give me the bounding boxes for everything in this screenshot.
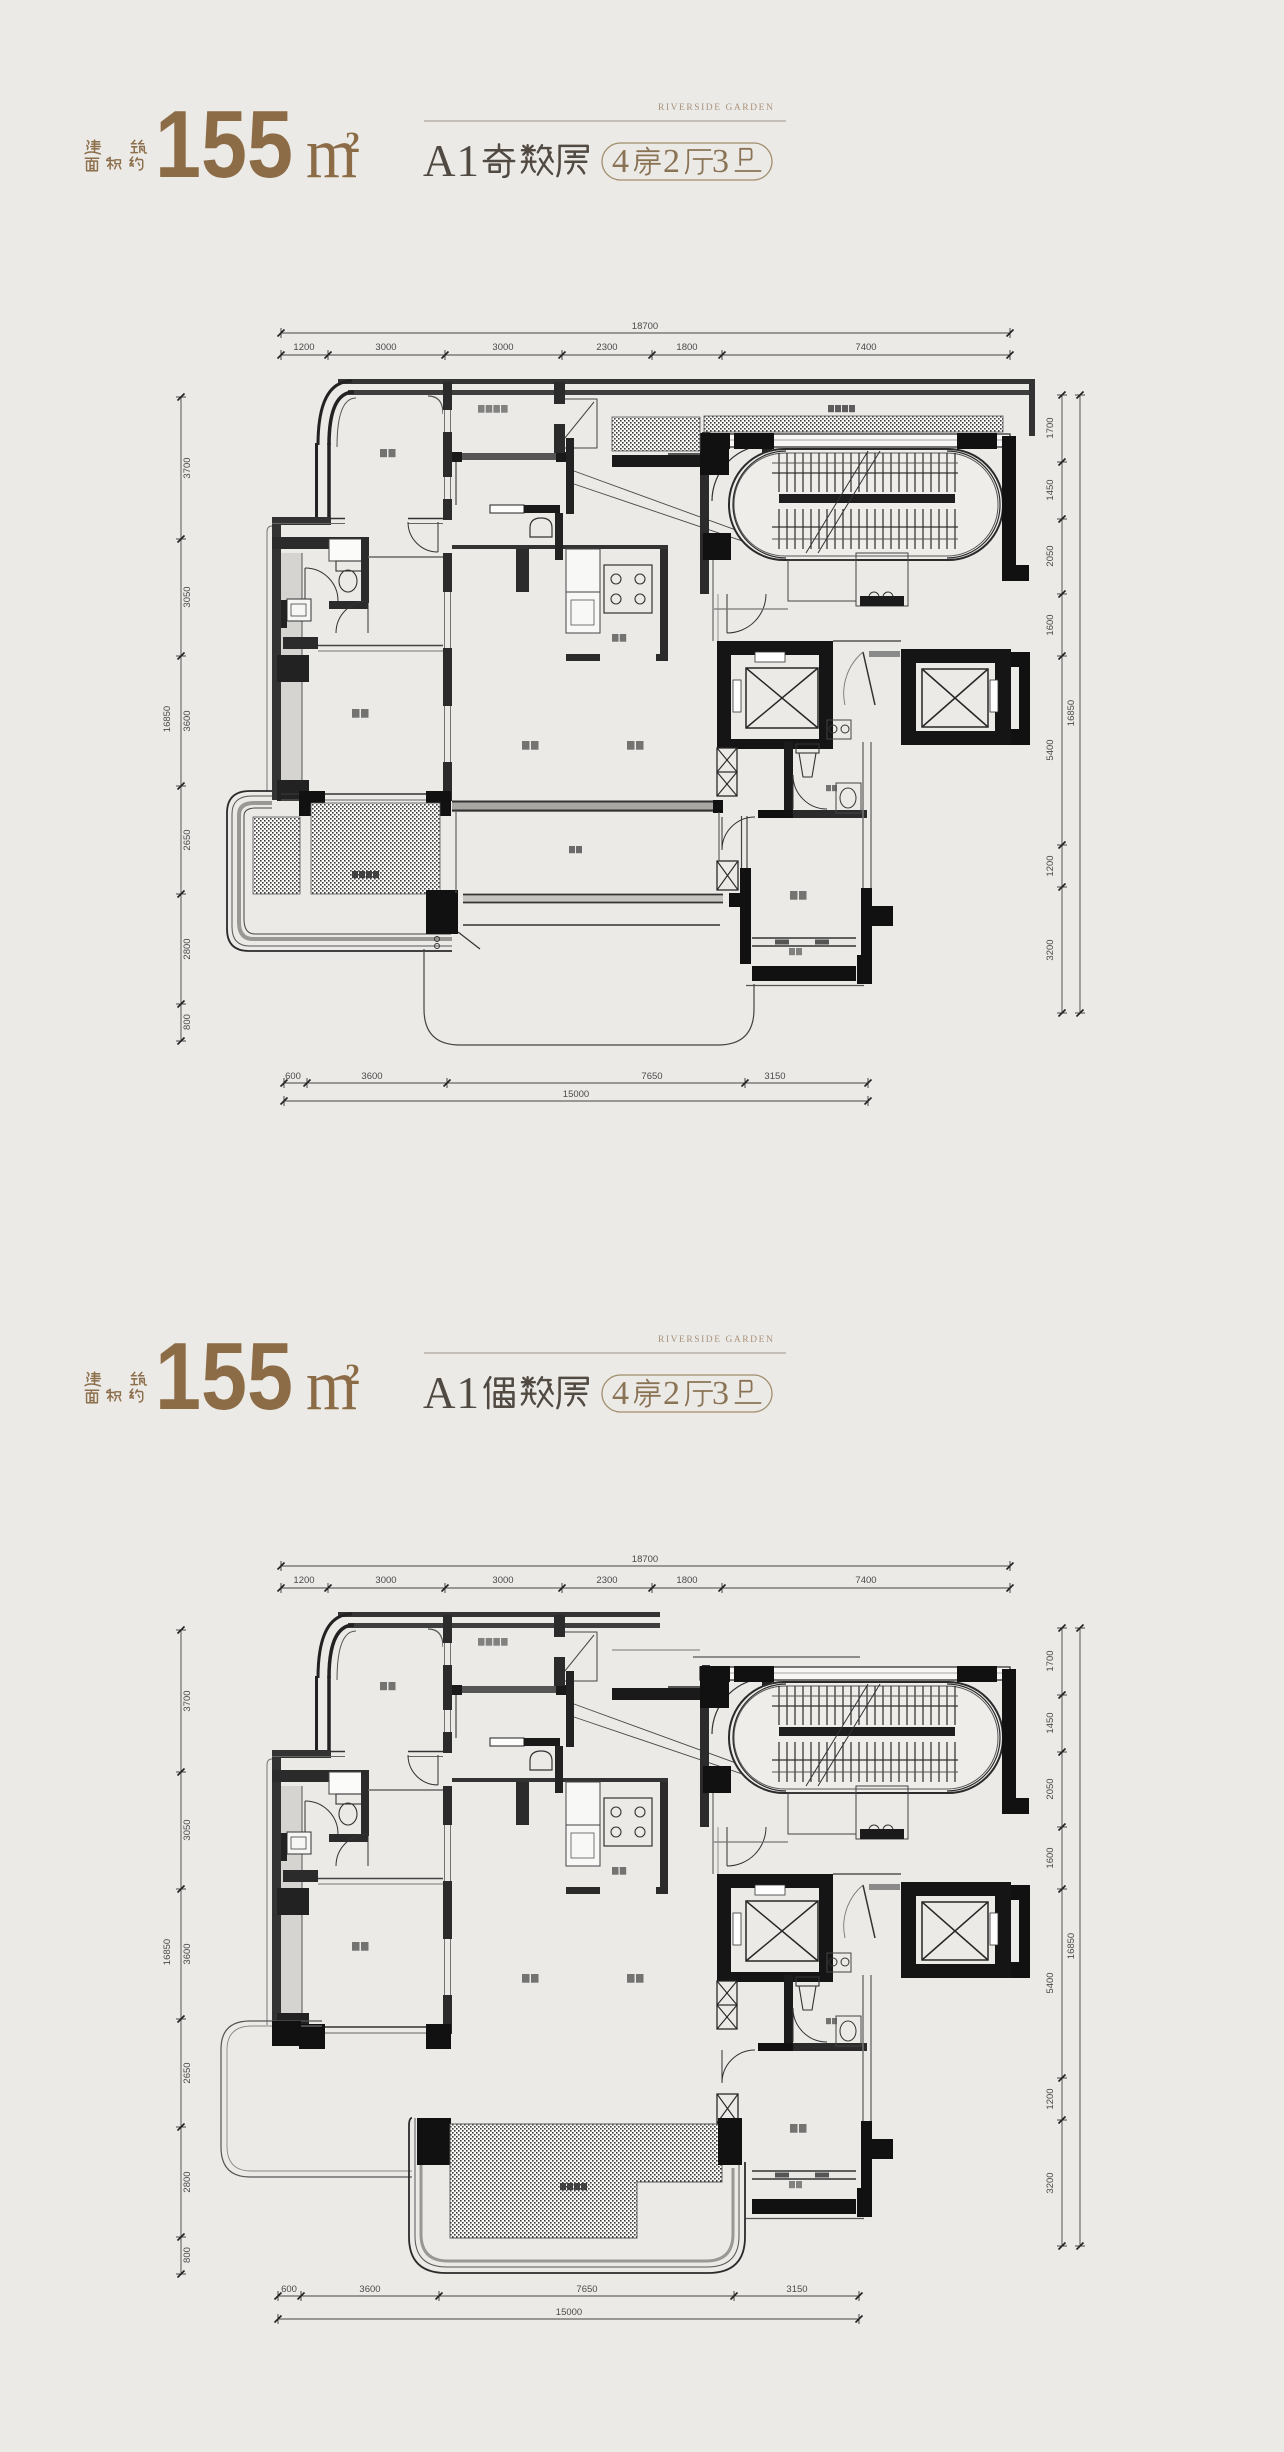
svg-text:3: 3: [712, 143, 729, 180]
svg-text:600: 600: [285, 1071, 301, 1082]
svg-text:3600: 3600: [361, 1071, 382, 1082]
svg-text:3150: 3150: [764, 1071, 785, 1082]
svg-text:A1: A1: [423, 136, 480, 186]
svg-text:7650: 7650: [641, 1071, 662, 1082]
svg-text:RIVERSIDE GARDEN: RIVERSIDE GARDEN: [658, 103, 774, 113]
svg-text:15000: 15000: [556, 2307, 582, 2318]
svg-text:3600: 3600: [359, 2284, 380, 2295]
svg-text:4: 4: [612, 1375, 629, 1412]
svg-text:4: 4: [612, 143, 629, 180]
svg-text:2: 2: [345, 126, 360, 159]
svg-text:A1: A1: [423, 1368, 480, 1418]
svg-text:2: 2: [663, 143, 680, 180]
svg-text:3150: 3150: [786, 2284, 807, 2295]
svg-text:600: 600: [281, 2284, 297, 2295]
svg-text:15000: 15000: [563, 1089, 589, 1100]
svg-text:2: 2: [345, 1358, 360, 1391]
svg-text:155: 155: [155, 1323, 293, 1430]
svg-text:155: 155: [155, 91, 293, 198]
svg-text:7650: 7650: [576, 2284, 597, 2295]
svg-text:3: 3: [712, 1375, 729, 1412]
svg-text:2: 2: [663, 1375, 680, 1412]
svg-text:RIVERSIDE GARDEN: RIVERSIDE GARDEN: [658, 1335, 774, 1345]
